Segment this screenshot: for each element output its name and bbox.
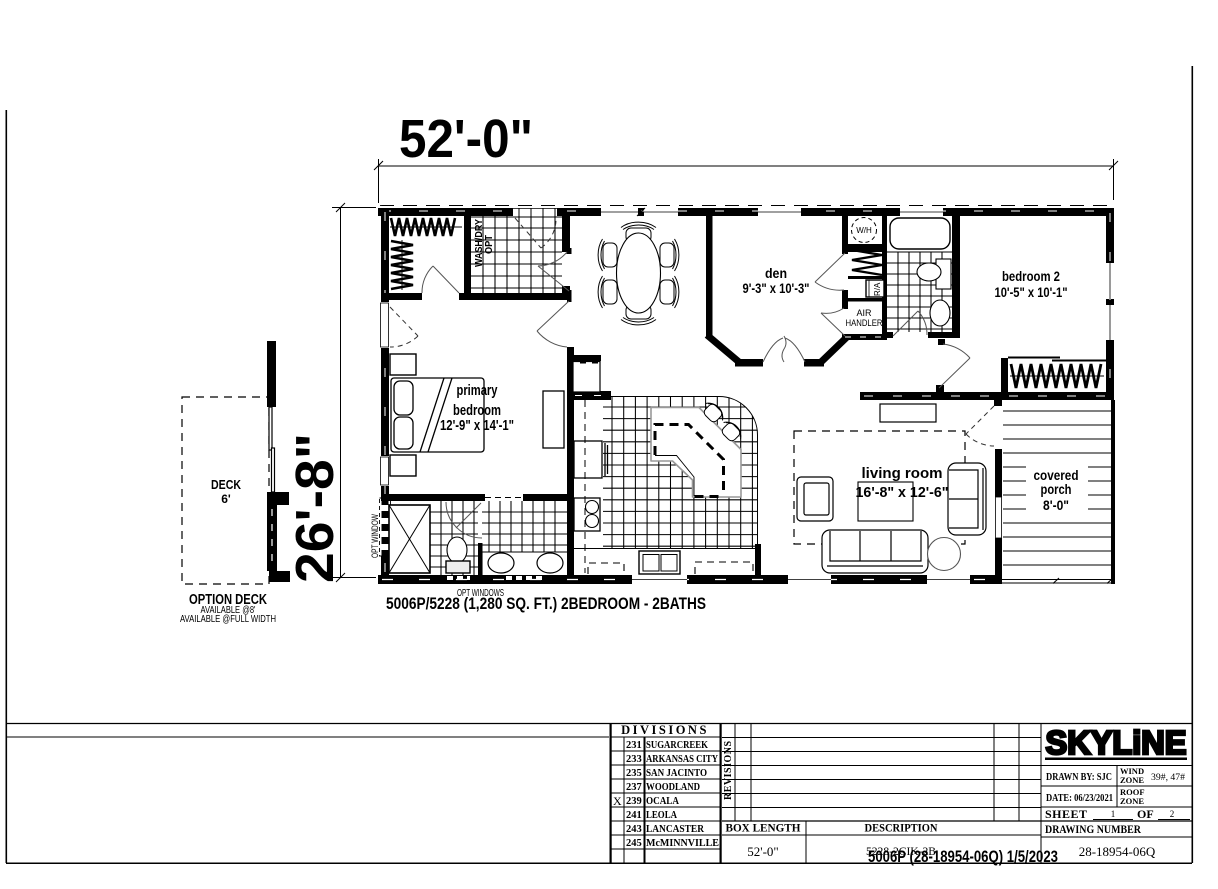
svg-text:52'-0": 52'-0" [399, 109, 533, 169]
svg-text:DECK: DECK [211, 478, 241, 492]
svg-text:SKYLiNE: SKYLiNE [1046, 724, 1187, 761]
svg-text:living room: living room [862, 466, 943, 482]
svg-text:16'-8" x 12'-6": 16'-8" x 12'-6" [856, 485, 949, 501]
svg-text:52'-0": 52'-0" [747, 844, 778, 859]
svg-text:28-18954-06Q: 28-18954-06Q [1079, 844, 1156, 859]
svg-text:LEOLA: LEOLA [646, 810, 677, 821]
svg-text:SHEET: SHEET [1045, 807, 1088, 821]
svg-text:bedroom 2: bedroom 2 [1002, 268, 1060, 284]
svg-text:26'-8": 26'-8" [285, 433, 345, 583]
svg-text:ARKANSAS CITY: ARKANSAS CITY [646, 754, 718, 765]
svg-text:241: 241 [626, 810, 642, 821]
svg-text:OCALA: OCALA [646, 796, 679, 807]
svg-text:8'-0": 8'-0" [1043, 498, 1069, 513]
svg-text:WOODLAND: WOODLAND [646, 782, 700, 793]
svg-text:239: 239 [626, 796, 642, 807]
svg-text:R/A: R/A [873, 282, 882, 296]
svg-text:39#, 47#: 39#, 47# [1151, 773, 1185, 783]
svg-text:ZONE: ZONE [1120, 796, 1144, 806]
svg-text:9'-3" x 10'-3": 9'-3" x 10'-3" [743, 280, 810, 296]
svg-text:McMINNVILLE: McMINNVILLE [646, 838, 719, 849]
svg-text:LANCASTER: LANCASTER [646, 824, 704, 835]
svg-text:DIVISIONS: DIVISIONS [621, 723, 709, 737]
svg-text:den: den [765, 265, 787, 281]
svg-text:REVISIONS: REVISIONS [723, 740, 734, 800]
svg-text:bedroom: bedroom [453, 403, 501, 419]
svg-text:DESCRIPTION: DESCRIPTION [865, 823, 939, 835]
svg-text:DRAWING NUMBER: DRAWING NUMBER [1045, 824, 1142, 836]
svg-text:2: 2 [1170, 809, 1175, 819]
svg-text:HANDLER: HANDLER [846, 318, 883, 328]
svg-text:AVAILABLE @FULL WIDTH: AVAILABLE @FULL WIDTH [180, 614, 276, 625]
svg-text:OF: OF [1137, 807, 1154, 821]
svg-text:6': 6' [221, 492, 231, 506]
svg-text:OPT: OPT [483, 234, 495, 254]
svg-text:SAN JACINTO: SAN JACINTO [646, 768, 707, 779]
svg-text:233: 233 [626, 754, 642, 765]
svg-text:245: 245 [626, 838, 642, 849]
svg-text:primary: primary [457, 383, 498, 399]
svg-text:5006P/5228 (1,280 SQ. FT.) 2BE: 5006P/5228 (1,280 SQ. FT.) 2BEDROOM - 2B… [386, 595, 706, 613]
svg-text:SUGARCREEK: SUGARCREEK [646, 740, 709, 751]
svg-text:243: 243 [626, 824, 642, 835]
svg-text:BOX LENGTH: BOX LENGTH [726, 823, 801, 835]
svg-text:237: 237 [626, 782, 642, 793]
svg-text:235: 235 [626, 768, 642, 779]
svg-text:12'-9" x 14'-1": 12'-9" x 14'-1" [440, 418, 514, 434]
svg-text:1: 1 [1111, 809, 1116, 819]
svg-text:covered: covered [1034, 468, 1079, 483]
svg-text:DATE: 06/23/2021: DATE: 06/23/2021 [1046, 793, 1113, 804]
svg-text:W/H: W/H [856, 226, 872, 235]
svg-text:AIR: AIR [856, 308, 872, 318]
svg-text:231: 231 [626, 740, 642, 751]
svg-text:X: X [613, 794, 622, 808]
svg-text:DRAWN BY: SJC: DRAWN BY: SJC [1046, 772, 1112, 783]
svg-text:porch: porch [1041, 482, 1072, 497]
svg-text:5006P (28-18954-06Q) 1/5/2023: 5006P (28-18954-06Q) 1/5/2023 [868, 847, 1058, 866]
svg-text:ZONE: ZONE [1120, 775, 1144, 785]
svg-text:OPT WINDOW: OPT WINDOW [370, 514, 381, 558]
svg-text:10'-5" x 10'-1": 10'-5" x 10'-1" [995, 284, 1068, 300]
